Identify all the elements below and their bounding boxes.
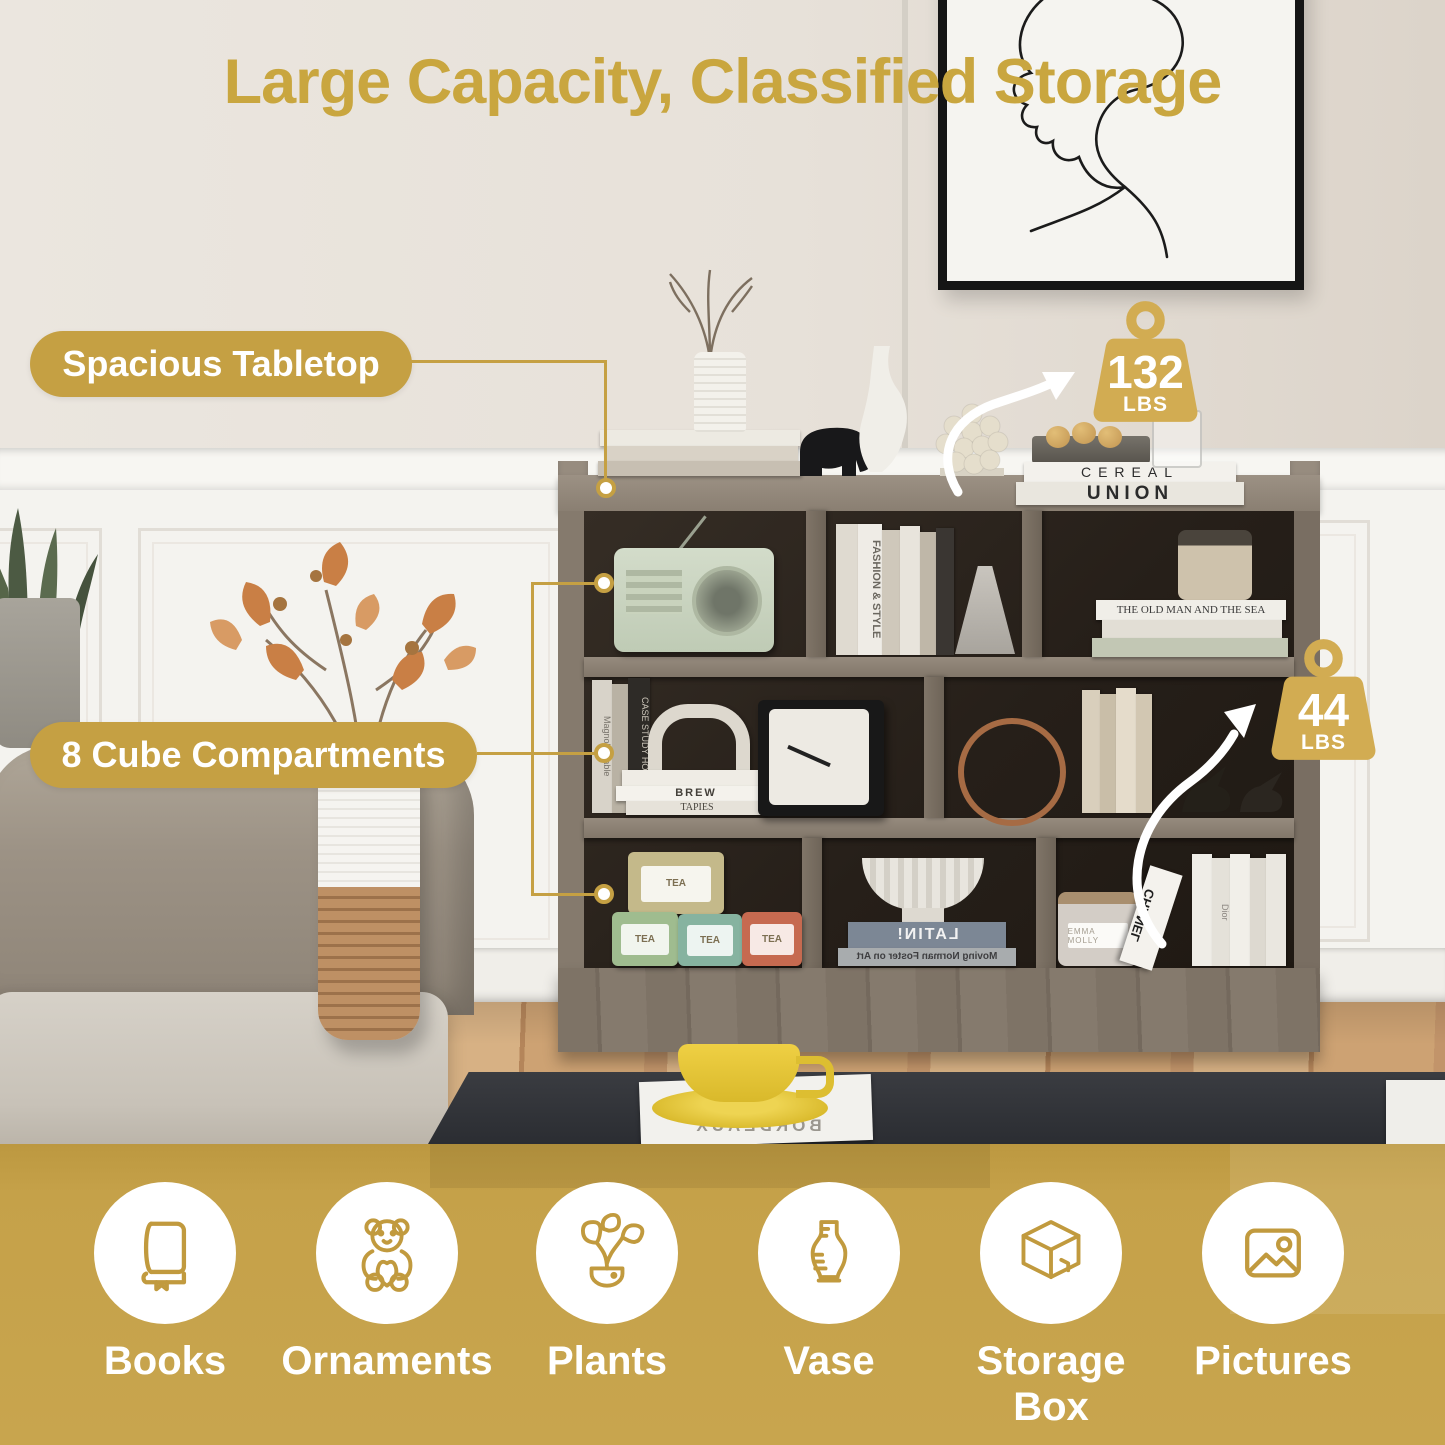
tabletop-book (606, 446, 798, 461)
callout-connector (477, 752, 533, 755)
norman-foster-book: Moving Norman Foster on Art (838, 948, 1016, 966)
sculptural-vase (852, 346, 912, 472)
tapies-book: TAPIES (626, 801, 768, 815)
headline: Large Capacity, Classified Storage (0, 46, 1445, 118)
ribbed-vase (694, 352, 746, 432)
tea-tin: TEA (742, 912, 802, 966)
cube-divider (924, 677, 944, 818)
bookcase-shelf-board (584, 657, 1294, 677)
book-spine (882, 530, 900, 655)
callout-connector (531, 582, 534, 894)
cube-divider (806, 511, 826, 657)
feature-label-books: Books (55, 1338, 275, 1384)
feature-label-ornaments: Ornaments (272, 1338, 502, 1384)
callout-connector (604, 360, 607, 482)
callout-cube-compartments: 8 Cube Compartments (30, 722, 477, 788)
bookcase-base (558, 968, 1320, 1052)
fashion-style-book: FASHION & STYLE (858, 524, 882, 655)
callout-connector (531, 582, 599, 585)
tea-tin: TEA (678, 914, 742, 966)
book-spine (836, 524, 858, 655)
plant-icon (564, 1210, 650, 1296)
tabletop-book (598, 461, 802, 476)
feature-storage-box (980, 1182, 1122, 1324)
dry-twigs (640, 268, 780, 360)
latin-book: LATIN! (848, 922, 1006, 948)
tabletop-book (600, 430, 800, 446)
capacity-unit: LBS (1256, 732, 1391, 753)
feature-books (94, 1182, 236, 1324)
callout-dot (594, 884, 614, 904)
book (1102, 620, 1282, 638)
callout-connector (531, 893, 599, 896)
tea-tin: TEA (628, 852, 724, 914)
feature-label-plants: Plants (497, 1338, 717, 1384)
capacity-value: 132 (1078, 349, 1213, 395)
wall-art-frame (938, 0, 1304, 290)
weight-badge-132: 132 LBS (1078, 296, 1213, 428)
coffee-table (428, 1072, 1445, 1144)
callout-spacious-tabletop: Spacious Tabletop (30, 331, 412, 397)
picture-icon (1230, 1210, 1316, 1296)
arrow-to-132 (930, 360, 1090, 505)
vase-icon (786, 1210, 872, 1296)
feature-pictures (1202, 1182, 1344, 1324)
callout-dot (594, 743, 614, 763)
book-spine (936, 528, 954, 655)
feature-label-vase: Vase (719, 1338, 939, 1384)
product-infographic: CEREAL UNION FASHION & STYLE THE OLD MAN… (0, 0, 1445, 1445)
line-art-face (947, 0, 1277, 263)
callout-connector (410, 360, 606, 363)
callout-label: 8 Cube Compartments (61, 734, 445, 776)
feature-label-storage-box: Storage Box (965, 1338, 1137, 1430)
arrow-to-44 (1128, 696, 1268, 952)
brew-book: BREW (616, 786, 776, 801)
callout-connector (531, 752, 599, 755)
teddy-bear-icon (344, 1210, 430, 1296)
book-spine (900, 526, 920, 655)
book-spine (1100, 694, 1116, 813)
book-spine (1082, 690, 1100, 813)
feature-label-pictures: Pictures (1163, 1338, 1383, 1384)
tea-tin: TEA (612, 912, 678, 966)
cube-divider (1022, 511, 1042, 657)
feature-vase (758, 1182, 900, 1324)
table-clock (758, 700, 884, 816)
capacity-unit: LBS (1078, 394, 1213, 415)
book (622, 770, 772, 786)
cup-handle (796, 1056, 834, 1098)
old-man-book: THE OLD MAN AND THE SEA (1096, 600, 1286, 620)
floor-vase (318, 756, 420, 1040)
book-icon (122, 1210, 208, 1296)
callout-dot (596, 478, 616, 498)
capacity-value: 44 (1256, 687, 1391, 733)
storage-box-icon (1008, 1210, 1094, 1296)
feature-plants (536, 1182, 678, 1324)
retro-radio (614, 548, 774, 652)
book-spine (920, 532, 936, 655)
weight-badge-44: 44 LBS (1256, 634, 1391, 766)
ring-sculpture (958, 718, 1066, 826)
callout-dot (594, 573, 614, 593)
magazine (1386, 1080, 1445, 1144)
book-spine (1266, 854, 1286, 966)
cube-divider (802, 838, 822, 968)
candle-jar (1178, 530, 1252, 600)
feature-ornaments (316, 1182, 458, 1324)
cube-divider (1036, 838, 1056, 968)
band-ghost-shape (430, 1144, 990, 1188)
callout-label: Spacious Tabletop (62, 343, 379, 385)
